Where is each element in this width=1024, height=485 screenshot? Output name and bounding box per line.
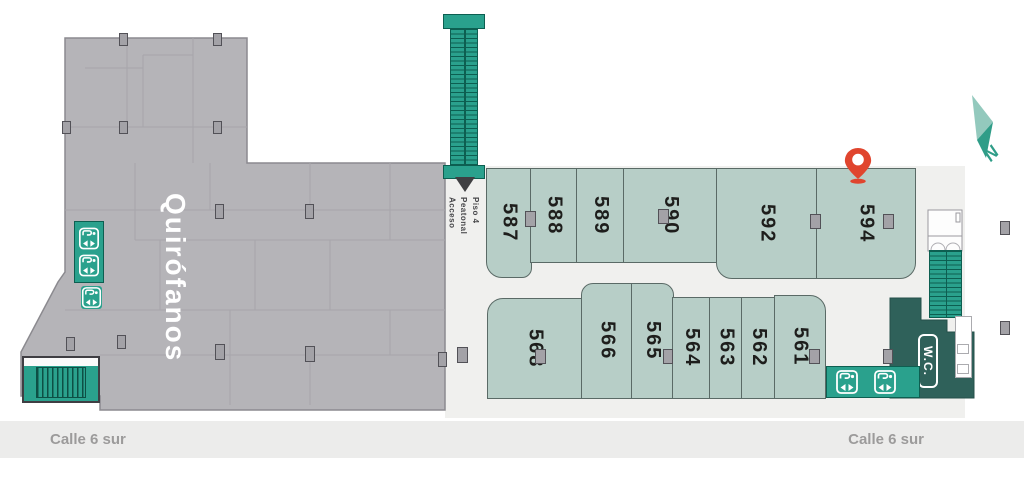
stairs-steps xyxy=(36,367,86,398)
elevator-cab xyxy=(81,286,102,309)
building-label: Quirófanos xyxy=(154,158,196,398)
door-marker xyxy=(213,121,222,134)
room-561[interactable]: 561 xyxy=(774,295,826,399)
door-marker xyxy=(213,33,222,46)
elevator-icon xyxy=(873,369,897,395)
street-band: Calle 6 sur Calle 6 sur xyxy=(0,421,1024,458)
room-number: 589 xyxy=(589,196,612,235)
pedestrian-access-label: Acceso Peatonal Piso 4 xyxy=(446,197,488,285)
room-588[interactable]: 588 xyxy=(530,168,578,263)
door-marker xyxy=(66,337,75,351)
toilet-icon xyxy=(957,364,969,374)
escalator-icon xyxy=(450,28,478,168)
street-label-right: Calle 6 sur xyxy=(848,431,924,448)
door-marker xyxy=(535,349,546,364)
door-marker xyxy=(305,346,315,362)
stairs-icon xyxy=(22,356,100,403)
elevator-bay xyxy=(826,366,920,398)
door-marker xyxy=(525,211,536,227)
toilet-icon xyxy=(957,344,969,354)
room-590[interactable]: 590 xyxy=(623,168,718,263)
door-marker xyxy=(1000,321,1010,335)
room-number: 563 xyxy=(715,328,738,367)
room-number: 562 xyxy=(747,328,770,367)
room-number: 565 xyxy=(641,321,664,360)
elevator-icon xyxy=(78,226,100,251)
room-563[interactable]: 563 xyxy=(709,297,743,399)
door-marker xyxy=(119,33,128,46)
room-number: 592 xyxy=(756,204,779,243)
door-marker xyxy=(1000,221,1010,235)
escalator-divider xyxy=(464,29,466,167)
elevator-bay xyxy=(74,221,104,283)
elevator-icon xyxy=(81,286,102,309)
room-number: 564 xyxy=(680,328,703,367)
room-566[interactable]: 566 xyxy=(581,283,633,399)
room-589[interactable]: 589 xyxy=(576,168,625,263)
door-marker xyxy=(663,349,673,364)
escalator-top-cap-icon xyxy=(443,14,485,29)
elevator-icon xyxy=(835,369,859,395)
map-pin-icon[interactable] xyxy=(841,142,875,188)
room-562[interactable]: 562 xyxy=(741,297,776,399)
door-swing-room xyxy=(927,209,963,253)
room-number: 588 xyxy=(543,196,566,235)
street-label-left: Calle 6 sur xyxy=(50,431,126,448)
room-564[interactable]: 564 xyxy=(672,297,711,399)
wc-label: W.C. xyxy=(918,334,938,388)
room-number: 594 xyxy=(855,204,878,243)
door-marker xyxy=(658,209,669,224)
door-marker xyxy=(119,121,128,134)
elevator-icon xyxy=(78,253,100,278)
room-565[interactable]: 565 xyxy=(631,283,674,399)
door-marker xyxy=(62,121,71,134)
door-marker xyxy=(883,214,894,229)
room-592[interactable]: 592 xyxy=(716,168,818,279)
door-marker xyxy=(117,335,126,349)
floor-plan: Quirófanos Acceso Peatonal Piso 4 587 58… xyxy=(0,0,1024,485)
door-marker xyxy=(438,352,447,367)
door-marker xyxy=(215,344,225,360)
door-marker xyxy=(305,204,314,219)
door-marker xyxy=(457,347,468,363)
door-marker xyxy=(215,204,224,219)
stairs-landing xyxy=(24,358,98,366)
room-number: 566 xyxy=(596,321,619,360)
down-triangle-icon xyxy=(455,177,475,192)
door-marker xyxy=(810,214,821,229)
door-marker xyxy=(809,349,820,364)
door-marker xyxy=(883,349,893,364)
room-number: 587 xyxy=(498,203,521,242)
